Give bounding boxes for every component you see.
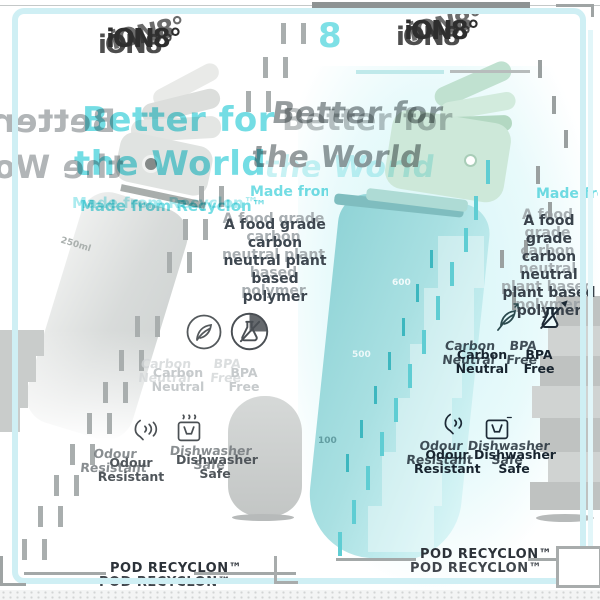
feature-label-dishwasher-safe: Dishwasher Safe Dishwasher Safe (474, 448, 554, 476)
scale-mark: 600 (392, 278, 411, 288)
glitch-displaced-frame-corner (556, 546, 600, 588)
cyan-edge-band (588, 30, 593, 560)
odour-icon (124, 412, 162, 450)
feature-label-carbon-neutral: Carbon Neutral Carbon Neutral (450, 348, 514, 376)
footer-rule (24, 572, 106, 575)
glitch-mark (38, 506, 63, 527)
brand-logo: iON8° iON8° iON8° (106, 24, 180, 54)
footer-text-ghost: POD RECYCLON™ (410, 561, 542, 576)
body-copy: A food grade carbon neutral plant based … (214, 216, 336, 306)
headline-ghost: the World (250, 140, 425, 175)
feature-label-dishwasher-safe: Dishwasher Safe Dishwasher Safe (176, 453, 254, 481)
bottle-shadow (232, 514, 294, 521)
leaf-icon (488, 298, 528, 338)
brand-logo: iON8° iON8° iON8° (404, 16, 478, 46)
headline-line2: the World (74, 144, 266, 184)
feature-label-bpa-free: BPA Free BPA Free (218, 366, 270, 394)
glitch-line (450, 70, 530, 73)
frame-corner-fragment (0, 556, 3, 586)
bottle-teal-hinge-button (466, 156, 475, 165)
scale-mark: 100 (318, 436, 337, 446)
feature-label-bpa-free: BPA Free BPA Free (514, 348, 564, 376)
frame-corner-fragment (274, 556, 277, 584)
glitch-mark (263, 57, 288, 78)
scale-mark: 500 (352, 350, 371, 360)
feature-label-carbon-neutral: Carbon Neutral Carbon Neutral (146, 366, 210, 394)
subheadline-fragment: Made from Recyclon™ (250, 184, 328, 200)
footer-text: POD RECYCLON™ (110, 561, 242, 576)
footer-text: POD RECYCLON™ (420, 547, 552, 562)
frame-corner-fragment (0, 583, 26, 586)
frame-corner-fragment (591, 4, 594, 17)
footer-text-ghost: POD RECYCLON™ (99, 575, 231, 590)
glitched-product-poster: 250ml 600 500 100 iON8° iON8° iON8° Bett… (0, 0, 600, 600)
footer-rule (336, 558, 416, 561)
badge-number: 8 (318, 16, 342, 56)
flask-icon (228, 310, 271, 353)
leaf-icon (184, 312, 224, 352)
frame-corner-fragment (556, 4, 594, 7)
feature-label-odour-resistant: Odour Resistant Odour Resistant (88, 456, 174, 484)
glitch-bar (312, 2, 530, 8)
frame-corner-fragment (274, 581, 298, 584)
dotted-edge-strip (0, 590, 600, 600)
glitch-mark (281, 23, 306, 44)
glitch-line (356, 70, 444, 74)
glitch-mark (22, 539, 47, 560)
headline-ghost: Better for (282, 103, 453, 138)
headline-line1: Better for (82, 100, 275, 140)
flask-icon (528, 296, 572, 340)
